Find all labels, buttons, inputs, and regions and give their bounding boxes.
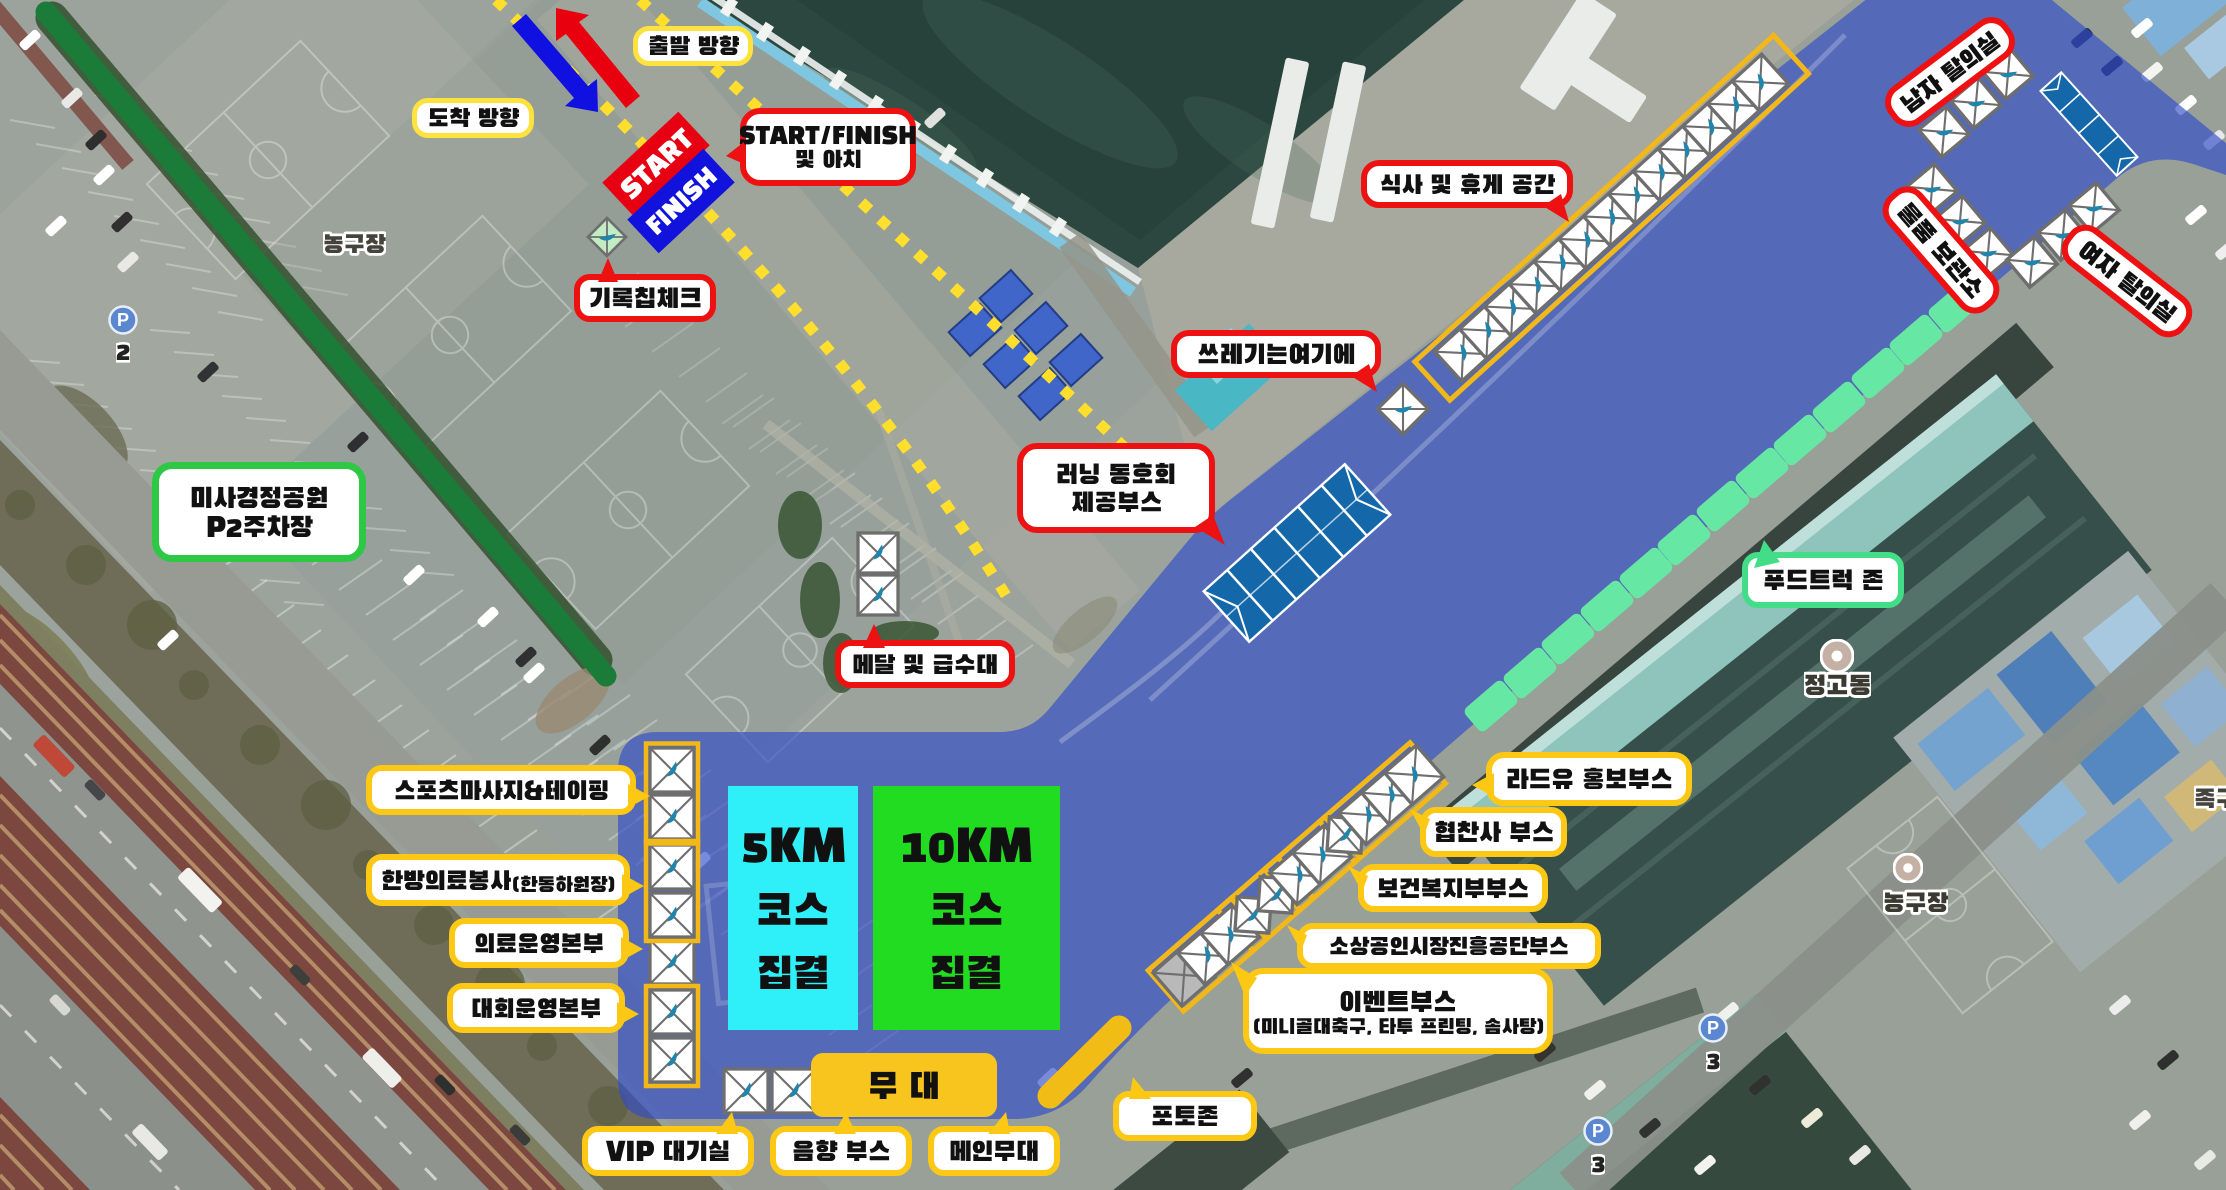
svg-text:P: P <box>1592 1121 1604 1141</box>
svg-text:P: P <box>117 310 129 330</box>
svg-text:P: P <box>1707 1018 1719 1038</box>
